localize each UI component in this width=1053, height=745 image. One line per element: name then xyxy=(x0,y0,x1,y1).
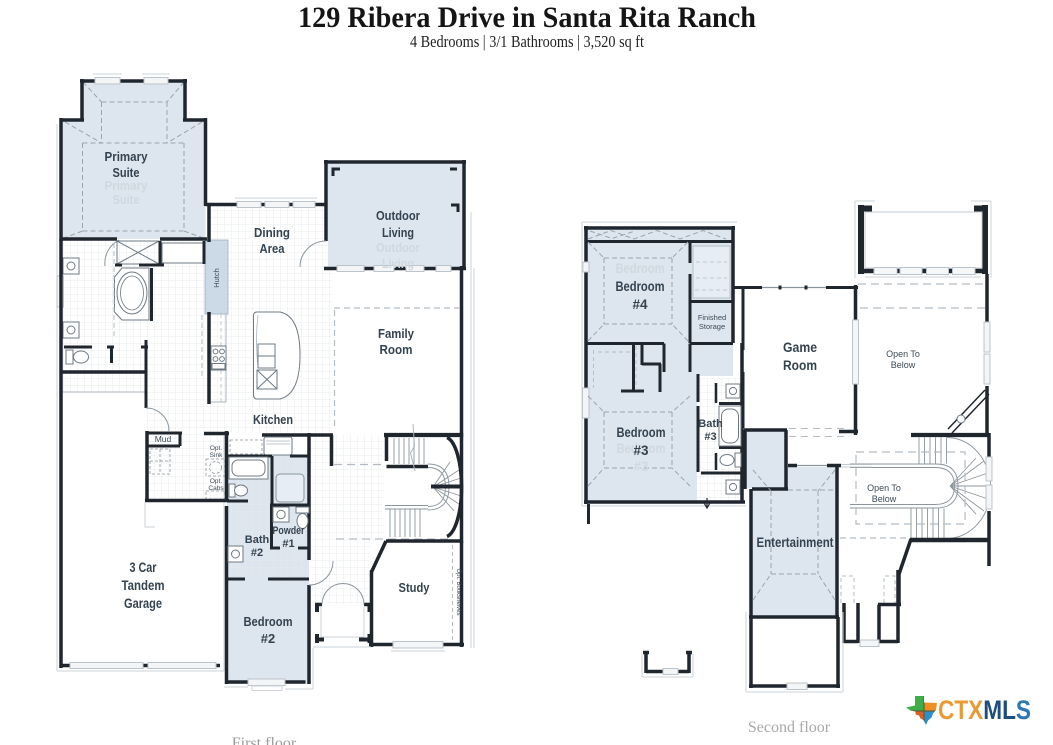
svg-text:Bedroom: Bedroom xyxy=(617,425,666,440)
svg-text:Open To: Open To xyxy=(867,483,901,493)
svg-text:Entertainment: Entertainment xyxy=(757,535,834,550)
svg-text:Finished: Finished xyxy=(698,313,726,322)
svg-text:Opt.: Opt. xyxy=(210,478,222,485)
svg-text:129 Ribera Drive in Santa Rita: 129 Ribera Drive in Santa Rita Ranch xyxy=(298,1,756,34)
svg-text:4 Bedrooms | 3/1 Bathrooms | 3: 4 Bedrooms | 3/1 Bathrooms | 3,520 sq ft xyxy=(410,32,644,51)
svg-text:Room: Room xyxy=(380,342,413,357)
svg-text:Open To: Open To xyxy=(886,349,920,359)
svg-text:Below: Below xyxy=(891,360,916,370)
svg-text:Living: Living xyxy=(382,256,414,271)
svg-text:3 Car: 3 Car xyxy=(130,560,158,575)
svg-text:Area: Area xyxy=(260,241,286,256)
svg-text:Kitchen: Kitchen xyxy=(253,412,293,427)
svg-text:Primary: Primary xyxy=(105,149,149,164)
svg-text:Study: Study xyxy=(399,580,431,595)
svg-text:#2: #2 xyxy=(251,547,263,559)
svg-text:Suite: Suite xyxy=(113,192,140,207)
svg-text:Mud: Mud xyxy=(155,434,172,444)
svg-text:Family: Family xyxy=(378,326,415,341)
svg-text:Living: Living xyxy=(382,225,414,240)
svg-text:CTXMLS: CTXMLS xyxy=(938,695,1031,725)
svg-text:Room: Room xyxy=(783,358,817,373)
svg-text:Opt.: Opt. xyxy=(210,445,222,452)
svg-text:#3: #3 xyxy=(633,443,649,458)
svg-text:Cabs: Cabs xyxy=(208,485,224,492)
svg-text:Bedroom: Bedroom xyxy=(616,279,665,294)
svg-text:#3: #3 xyxy=(633,459,649,474)
svg-text:Bedroom: Bedroom xyxy=(616,261,665,276)
svg-text:Bath: Bath xyxy=(245,534,270,546)
svg-text:Hutch: Hutch xyxy=(212,268,221,288)
svg-text:Second floor: Second floor xyxy=(748,719,831,736)
svg-text:#2: #2 xyxy=(261,631,275,646)
svg-text:Game: Game xyxy=(783,340,817,355)
svg-text:Bath: Bath xyxy=(698,418,723,430)
svg-text:Primary: Primary xyxy=(105,178,149,193)
svg-text:#4: #4 xyxy=(632,297,648,312)
svg-text:Dining: Dining xyxy=(254,225,290,240)
svg-text:Below: Below xyxy=(872,494,897,504)
svg-text:Bedroom: Bedroom xyxy=(244,614,293,629)
svg-text:#3: #3 xyxy=(704,431,716,443)
svg-text:Storage: Storage xyxy=(699,322,725,331)
svg-text:Garage: Garage xyxy=(124,596,162,611)
svg-text:Outdoor: Outdoor xyxy=(376,208,420,223)
svg-text:Powder: Powder xyxy=(273,525,306,537)
svg-text:Sink: Sink xyxy=(210,452,223,459)
svg-text:First floor: First floor xyxy=(232,735,297,745)
svg-text:Outdoor: Outdoor xyxy=(376,240,420,255)
svg-text:Tandem: Tandem xyxy=(122,578,165,593)
svg-text:#1: #1 xyxy=(282,538,294,550)
svg-text:Opt. Bookshelves: Opt. Bookshelves xyxy=(455,568,461,615)
